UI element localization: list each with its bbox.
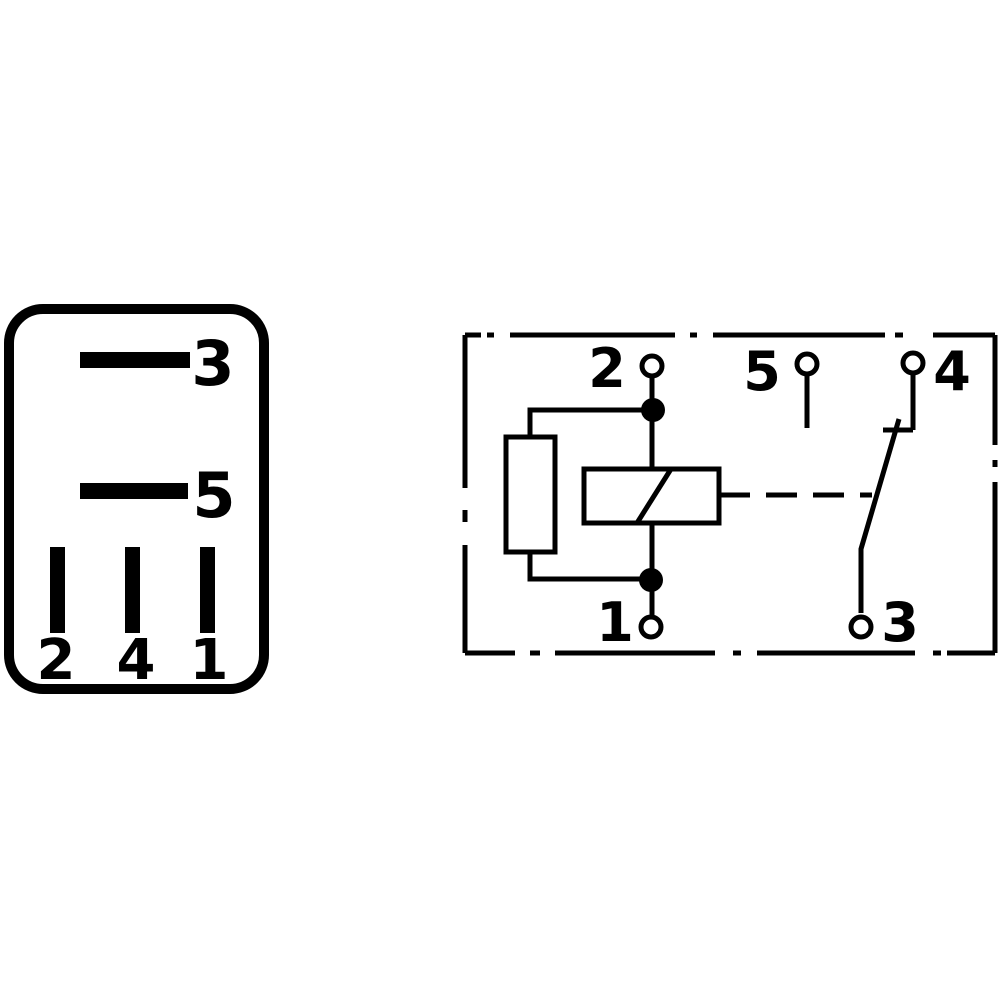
resistor-symbol <box>506 437 555 552</box>
pin-label-3: 3 <box>191 327 234 400</box>
terminal-1 <box>641 617 661 637</box>
pin-slot-3 <box>80 352 190 368</box>
junction-dot-top <box>641 398 665 422</box>
terminal-4 <box>903 353 923 373</box>
pin-slot-1 <box>200 547 215 633</box>
pin-layout-view: 3 5 2 4 1 <box>9 309 264 693</box>
pin-label-4: 4 <box>117 628 156 693</box>
terminal-label-2: 2 <box>588 337 626 400</box>
pin-label-1: 1 <box>190 628 229 693</box>
diagram-canvas: 3 5 2 4 1 <box>0 0 1000 1000</box>
wire-junction-to-resistor-top <box>530 410 653 437</box>
terminal-label-1: 1 <box>596 591 634 654</box>
terminal-label-3: 3 <box>881 591 919 654</box>
terminal-5 <box>797 354 817 374</box>
pin-slot-2 <box>50 547 65 633</box>
terminal-3 <box>851 617 871 637</box>
pin-label-5: 5 <box>192 459 235 532</box>
terminal-label-4: 4 <box>933 340 971 403</box>
switch-blade <box>861 419 899 613</box>
pin-slot-5 <box>80 483 188 499</box>
relay-diagram: 3 5 2 4 1 <box>0 0 1000 1000</box>
pin-label-2: 2 <box>37 628 76 693</box>
pin-slot-4 <box>125 547 140 633</box>
circuit-schematic: 2 5 4 1 3 <box>465 335 995 654</box>
wire-resistor-bottom-to-junction <box>530 552 651 579</box>
junction-dot-bottom <box>639 568 663 592</box>
terminal-label-5: 5 <box>743 340 781 403</box>
terminal-2 <box>642 356 662 376</box>
